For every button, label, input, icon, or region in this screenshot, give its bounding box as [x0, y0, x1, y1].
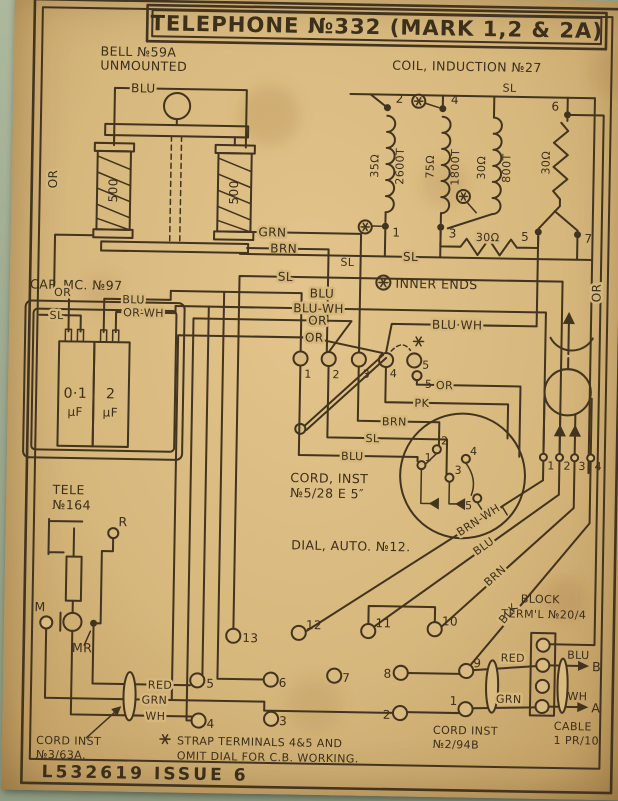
block-red-label: RED — [501, 652, 526, 665]
cord5-blu-label: BLU — [341, 450, 364, 463]
tele-title-line1: TELE — [51, 482, 84, 498]
bell-blu-label: BLU — [131, 81, 156, 95]
cord5-section: OR PK BRN SL BLU CORD, INST №5/28 E 5″ — [290, 365, 521, 504]
block-title-line2: TERM'L №20/4 — [500, 607, 586, 621]
tele-bracket — [48, 519, 82, 555]
strip-terminal-13: 13 — [242, 631, 258, 645]
hook-terminal-2: 2 — [332, 368, 340, 381]
coil-sl-top-label: SL — [502, 82, 517, 95]
strip-terminal-8: 8 — [383, 667, 391, 681]
dial-terminal-2: 2 — [441, 434, 449, 447]
strap-note: STRAP TERMINALS 4&5 AND OMIT DIAL FOR C.… — [160, 734, 359, 766]
cap-or-label: OR — [54, 286, 71, 299]
coil-w2-ohms: 75Ω — [424, 155, 437, 179]
drawing-number: L532619 ISSUE 6 — [41, 762, 248, 786]
cord5-title-line1: CORD, INST — [290, 470, 368, 486]
handset-body — [544, 369, 591, 416]
blu-bus-label: BLU — [310, 286, 335, 300]
strip-terminal-11: 11 — [375, 616, 391, 630]
block-grn-wire — [473, 706, 535, 709]
footer-bar: L532619 ISSUE 6 — [41, 762, 248, 786]
title-box: TELEPHONE №332 (MARK 1,2 & 2A) — [147, 5, 607, 49]
cord5-pk-label: PK — [414, 397, 429, 410]
dial-circle — [399, 413, 526, 540]
tele-title-line2: №164 — [52, 497, 91, 513]
block-red-wire — [473, 665, 535, 671]
or-right-label: OR — [589, 283, 603, 302]
hook-lever — [303, 354, 386, 432]
tele-r-label: R — [118, 514, 127, 529]
strip-terminal-2: 2 — [383, 708, 391, 722]
handset-arrow-up-3 — [569, 424, 581, 436]
handset-hook — [550, 338, 592, 351]
note-line2: OMIT DIAL FOR C.B. WORKING. — [177, 749, 359, 765]
strip-terminal-9: 9 — [473, 656, 481, 670]
strip-link-8-9 — [408, 673, 459, 674]
bell-title-line2: UNMOUNTED — [100, 58, 187, 75]
bell-base — [101, 241, 248, 253]
bus-vertical-3 — [202, 307, 208, 676]
or2-bus-label: OR — [305, 330, 324, 344]
photo-background: TELEPHONE №332 (MARK 1,2 & 2A) L532619 I… — [0, 0, 618, 801]
coil-w1-turns: 2600T — [393, 148, 407, 185]
cap-orwh-label: OR-WH — [123, 306, 164, 320]
or1-bus-label: OR — [308, 313, 327, 327]
bell-grn-label: GRN — [258, 225, 286, 239]
coil-terminal-6: 6 — [551, 100, 559, 114]
coil-rhoriz-label: 30Ω — [476, 231, 500, 244]
bluwh2-label: BLU·WH — [432, 318, 483, 333]
cord3-title-line2: №3/63A. — [36, 748, 86, 762]
line-b-label: B — [592, 659, 601, 674]
strip-terminal-7: 7 — [342, 671, 350, 685]
wiring-diagram: TELEPHONE №332 (MARK 1,2 & 2A) L532619 I… — [1, 0, 618, 800]
strap-star-icon — [413, 337, 423, 346]
block-grn-label: GRN — [496, 693, 522, 706]
dial-contact-1 — [421, 469, 438, 503]
block-wh-label: WH — [567, 690, 587, 703]
cap-blu-label: BLU — [122, 293, 145, 306]
handset-section: 1 2 3 4 — [540, 311, 605, 473]
cord5-sl-label: SL — [365, 432, 380, 445]
coil-terminal-4: 4 — [451, 93, 459, 107]
note-line1: STRAP TERMINALS 4&5 AND — [177, 734, 342, 750]
sl-bus-wire — [233, 276, 562, 634]
grn-label: GRN — [141, 694, 167, 707]
right-vertical-2 — [550, 115, 604, 645]
strip-terminal-1: 1 — [449, 694, 457, 708]
coil-title: COIL, INDUCTION №27 — [392, 58, 542, 76]
coil-w3-turns: 800T — [500, 153, 514, 183]
dial-label: DIAL, AUTO. №12. — [291, 537, 411, 554]
red-wire — [93, 626, 192, 685]
coil-sl-top-wire — [350, 94, 595, 98]
tele-mr-label: MR — [72, 640, 93, 655]
strip-link-2-1 — [407, 712, 458, 713]
inner-end-icon — [457, 190, 477, 213]
tele-terminal-m — [40, 616, 52, 628]
block-title-line1: BLOCK — [521, 593, 561, 607]
bell-yoke — [105, 124, 248, 138]
cable-label-line2: 1 PR/10 — [553, 734, 599, 748]
strip-terminal-12: 12 — [306, 618, 322, 632]
sl-long-label: SL — [403, 250, 418, 264]
cord-brn-label: BRN — [482, 563, 509, 589]
strip-terminal-6: 6 — [279, 676, 287, 690]
red-label: RED — [148, 679, 173, 692]
dial-terminal-5: 5 — [465, 499, 473, 512]
handset-arrow — [568, 320, 569, 354]
wire-bus: SL SL BLU BLU-WH OR OR BLU·WH OR — [163, 230, 604, 728]
coil-w1-ohms: 35Ω — [368, 154, 381, 178]
sl-bus-label: SL — [278, 270, 293, 284]
handset-leads — [543, 398, 591, 454]
diagram-paper: TELEPHONE №332 (MARK 1,2 & 2A) L532619 I… — [1, 0, 618, 800]
line-a-label: A — [591, 700, 600, 715]
tele-r-wire — [97, 538, 114, 624]
bell-coil-left-value: 500 — [106, 178, 120, 202]
coil-terminal-3: 3 — [449, 226, 457, 240]
bus-vertical-2 — [217, 292, 270, 680]
block-blu-label: BLU — [567, 649, 590, 662]
cord5-or-wire — [416, 381, 521, 457]
strip-terminal-3: 3 — [279, 714, 287, 728]
cap-unit-2: μF — [103, 405, 119, 419]
handset-terminal-1: 1 — [547, 459, 555, 472]
coil-terminal-7: 7 — [584, 232, 592, 246]
hook-terminal-1: 1 — [304, 368, 312, 381]
strip-terminal-4: 4 — [206, 717, 214, 731]
tele-transmitter — [63, 613, 81, 631]
cap-sl-label: SL — [50, 309, 65, 322]
coil-sl-bottom-label: SL — [340, 256, 355, 269]
coil-w2-turns: 1800T — [449, 149, 463, 186]
hook-terminal-5: 5 — [422, 359, 430, 372]
coil-terminal-1: 1 — [392, 225, 400, 239]
cord3-sleeve — [123, 672, 136, 720]
strip-terminal-5: 5 — [206, 677, 214, 691]
tele-m-label: M — [34, 599, 46, 614]
handset-terminal-4: 4 — [594, 460, 602, 473]
bell-gong — [164, 93, 191, 120]
inner-end-icon — [359, 220, 382, 233]
cord5-brn-label: BRN — [382, 415, 407, 428]
or1-bus-wire — [186, 318, 351, 723]
handset-arrow-up-2 — [554, 424, 566, 436]
strap-arc — [391, 345, 410, 352]
handset-terminal-2: 2 — [563, 460, 571, 473]
capacitor-section: CAP. MC. №97 0·1 μF 2 μF OR SL BLU OR-WH — [23, 276, 185, 460]
bell-or-label: OR — [46, 169, 60, 188]
bell-coil-right-value: 500 — [227, 180, 241, 204]
coil-terminal-5: 5 — [521, 230, 529, 244]
cord2-title-line2: №2/94B — [433, 738, 480, 752]
inner-end-icon — [412, 95, 439, 109]
blu-bus-wire — [170, 291, 302, 352]
tele-receiver-element — [66, 556, 82, 600]
cap-value-2: 2 — [106, 386, 116, 402]
strip-terminal-10: 10 — [442, 614, 458, 628]
cap-title: CAP. MC. №97 — [30, 276, 123, 293]
wh-label: WH — [145, 710, 165, 723]
tele-terminal-r — [108, 528, 118, 538]
coil-w3-ohms: 30Ω — [475, 156, 488, 180]
cable-sleeve — [557, 659, 568, 713]
cable-label-line1: CABLE — [554, 720, 592, 734]
cord5-title-line2: №5/28 E 5″ — [290, 485, 364, 501]
coil-terminal-2: 2 — [396, 92, 404, 106]
cap-unit-1: μF — [67, 405, 83, 419]
cord5-or-label: OR — [436, 379, 453, 392]
bell-armature — [170, 136, 172, 242]
dial-terminal-3: 3 — [454, 464, 462, 477]
dial-terminal-4: 4 — [470, 445, 478, 458]
cord3-title-line1: CORD INST — [36, 734, 101, 748]
note-star-icon — [160, 735, 170, 744]
cord2-title-line1: CORD INST — [433, 724, 498, 738]
tele164-section: TELE №164 R M MR — [34, 482, 129, 656]
handset-terminal-3: 3 — [578, 460, 586, 473]
hook-terminal-4: 4 — [390, 367, 398, 380]
cap-value-1: 0·1 — [63, 386, 87, 402]
coil-rvert-label: 30Ω — [539, 151, 552, 175]
